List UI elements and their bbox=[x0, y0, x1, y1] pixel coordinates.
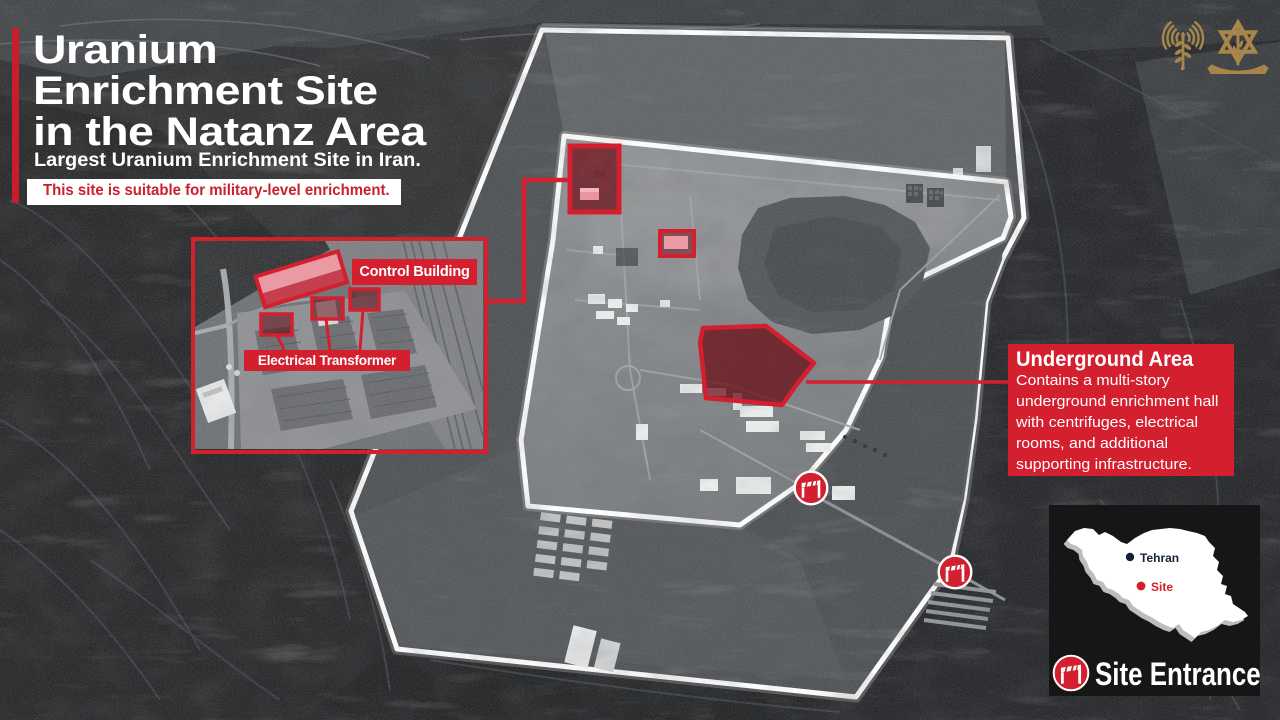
svg-text:Site: Site bbox=[1151, 580, 1173, 594]
svg-text:Tehran: Tehran bbox=[1140, 551, 1179, 565]
